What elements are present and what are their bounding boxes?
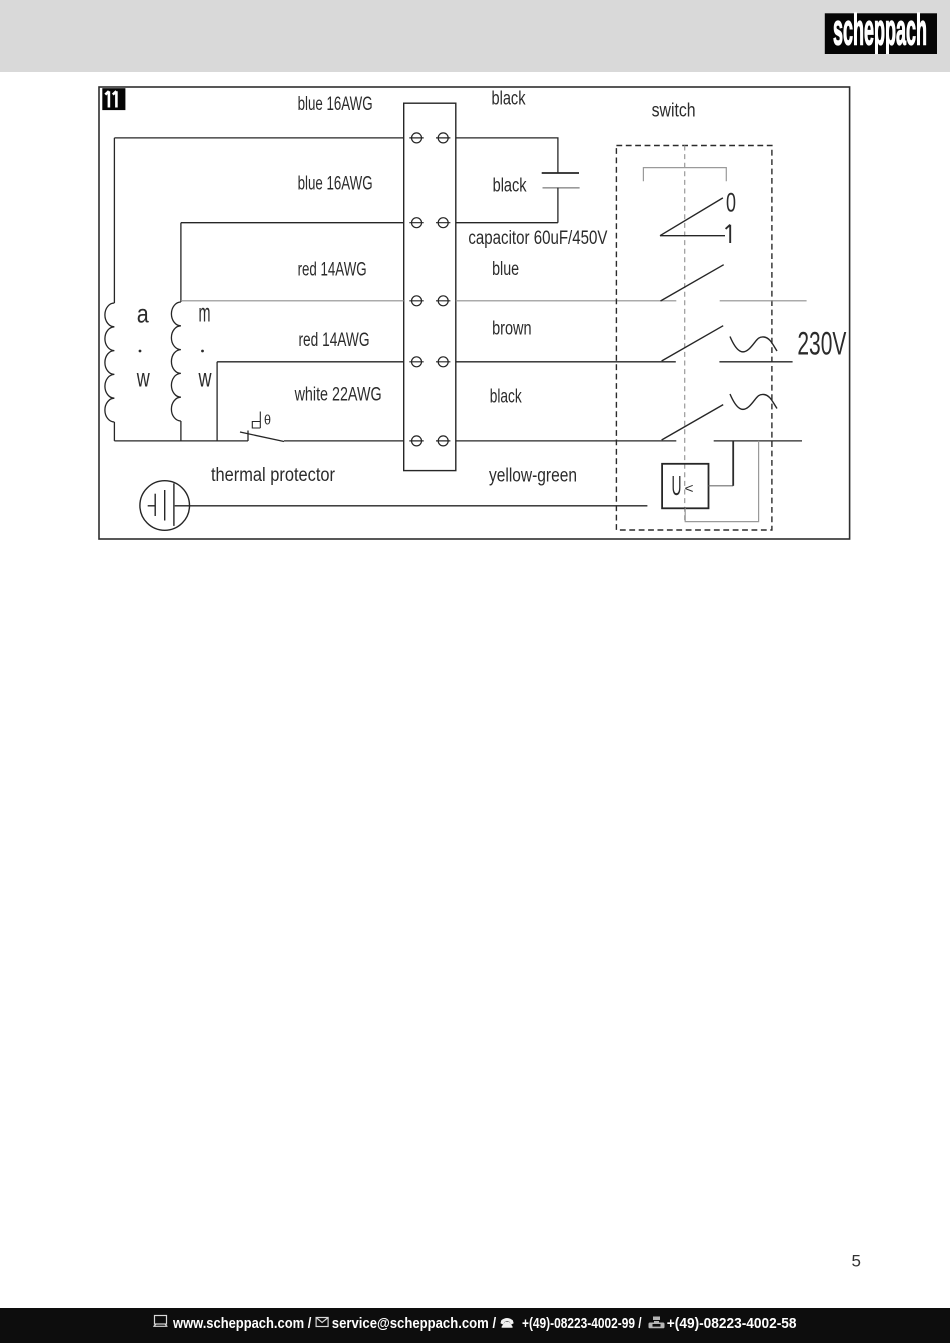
svg-text:+(49)-08223-4002-58: +(49)-08223-4002-58 [667, 1315, 797, 1332]
svg-text:www.scheppach.com /: www.scheppach.com / [172, 1315, 312, 1332]
svg-text:m: m [199, 298, 211, 328]
svg-text:<: < [685, 480, 694, 496]
svg-text:230V: 230V [797, 326, 846, 362]
svg-text:white 22AWG: white 22AWG [294, 385, 382, 406]
svg-text:w: w [198, 363, 212, 393]
svg-text:red 14AWG: red 14AWG [299, 330, 370, 351]
svg-text:black: black [493, 176, 527, 197]
svg-text:thermal protector: thermal protector [211, 465, 336, 486]
svg-text:brown: brown [492, 319, 531, 340]
svg-text:scheppach: scheppach [833, 6, 927, 55]
svg-text:blue: blue [492, 259, 519, 280]
svg-text:black: black [492, 89, 526, 110]
svg-text:capacitor 60uF/450V: capacitor 60uF/450V [468, 228, 607, 249]
svg-text:red 14AWG: red 14AWG [298, 259, 367, 280]
svg-text:U: U [672, 470, 682, 501]
svg-text:a: a [137, 298, 149, 328]
svg-text:5: 5 [852, 1252, 861, 1271]
svg-text:w: w [136, 363, 150, 393]
svg-text:blue 16AWG: blue 16AWG [298, 94, 373, 115]
svg-text:0: 0 [726, 188, 736, 218]
svg-text:θ: θ [264, 412, 271, 428]
svg-text:+(49)-08223-4002-99 /: +(49)-08223-4002-99 / [522, 1315, 642, 1332]
svg-text:service@scheppach.com /: service@scheppach.com / [332, 1315, 497, 1332]
svg-text:switch: switch [652, 101, 696, 122]
svg-text:yellow-green: yellow-green [489, 466, 577, 487]
svg-text:black: black [490, 386, 522, 407]
svg-text:blue 16AWG: blue 16AWG [298, 174, 373, 195]
